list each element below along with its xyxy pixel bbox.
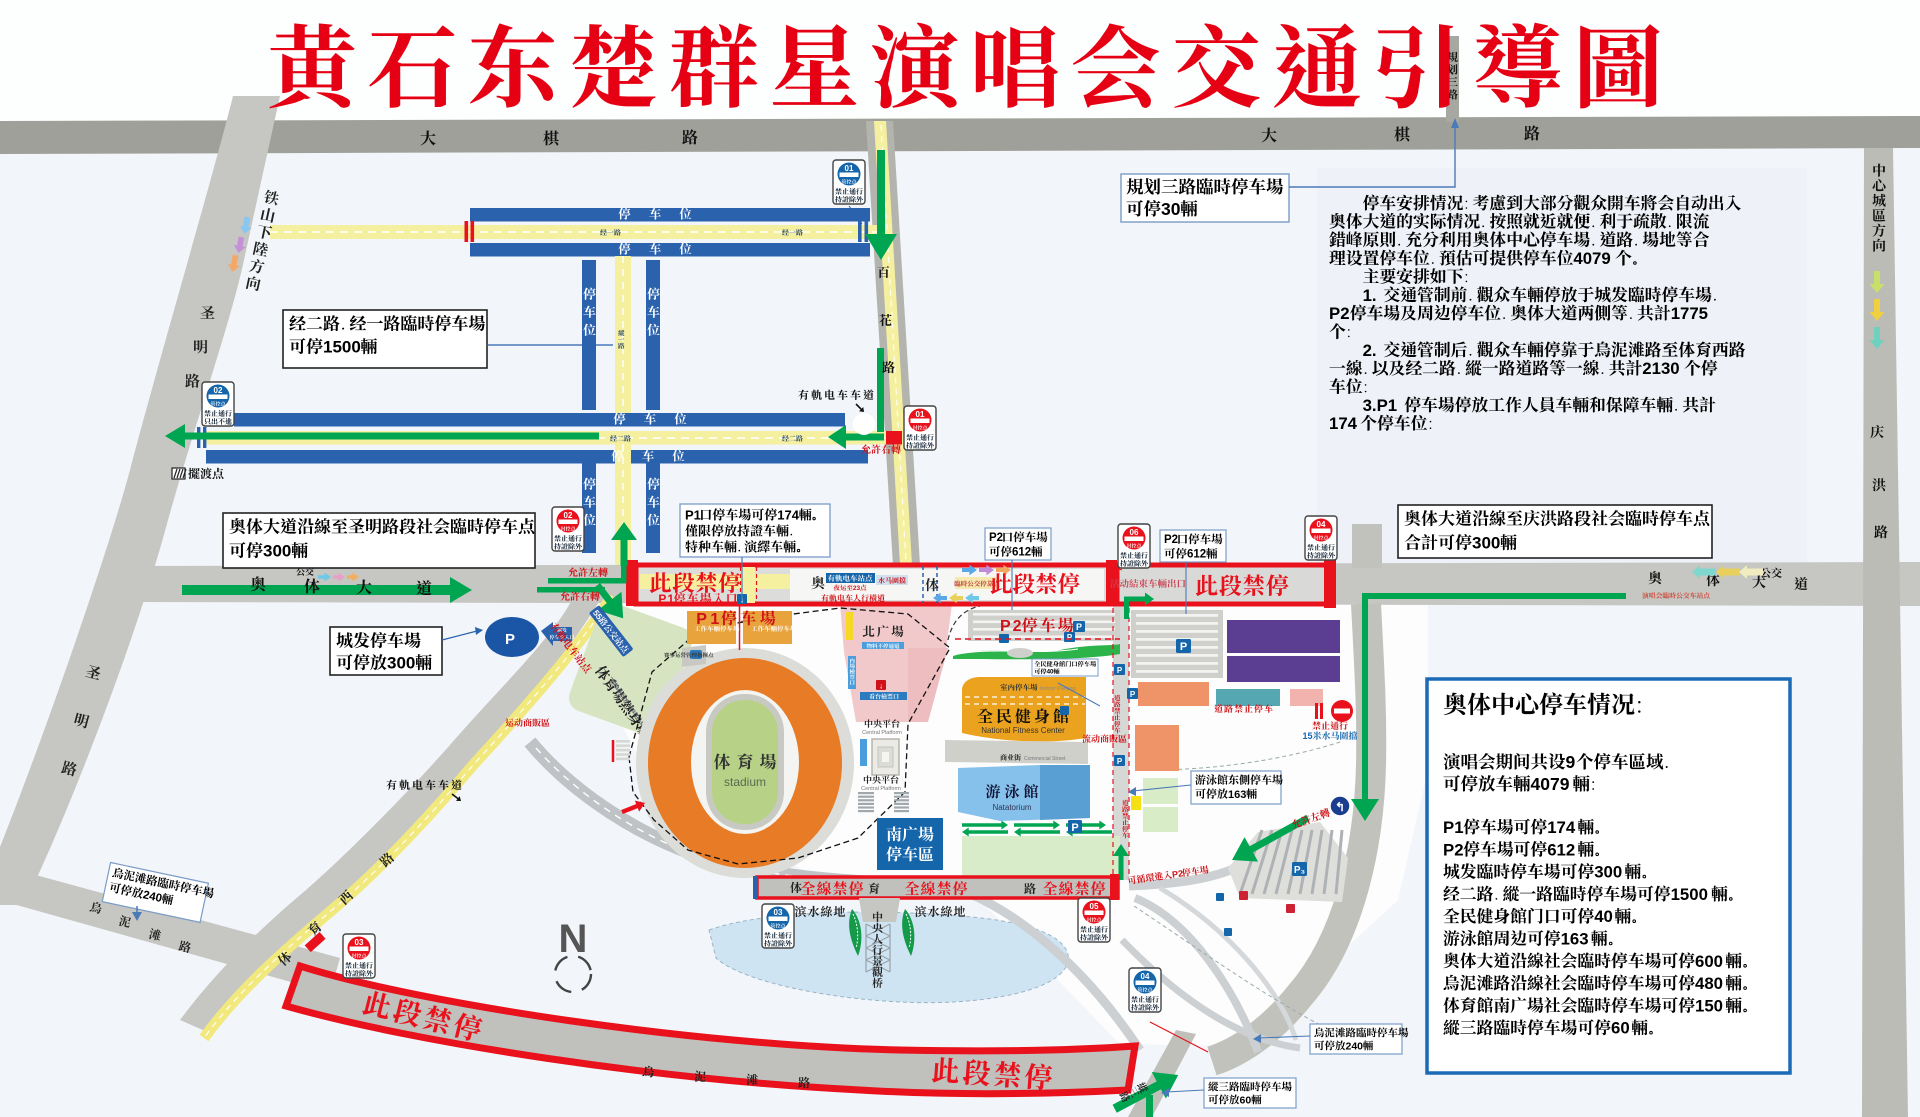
svg-text:P2: P2 — [1329, 304, 1350, 323]
svg-text:Central Platform: Central Platform — [862, 730, 902, 736]
svg-text:P2: P2 — [1000, 618, 1024, 635]
svg-text:4079: 4079 — [1573, 249, 1610, 268]
svg-text:P1: P1 — [685, 507, 701, 522]
svg-text:163: 163 — [1228, 789, 1246, 801]
svg-text:P2: P2 — [1164, 534, 1178, 546]
svg-text:P: P — [1117, 757, 1123, 766]
svg-text:600: 600 — [1695, 952, 1723, 971]
svg-text:Central Platform: Central Platform — [861, 786, 901, 792]
svg-text:P2: P2 — [1443, 840, 1464, 859]
svg-text:P: P — [1130, 690, 1136, 699]
svg-text:stadium: stadium — [724, 775, 766, 789]
svg-text:01: 01 — [845, 164, 854, 173]
svg-text:P: P — [1067, 633, 1073, 642]
svg-text:612: 612 — [1547, 840, 1575, 859]
svg-text:P1: P1 — [658, 592, 675, 606]
svg-text:240: 240 — [1346, 1040, 1364, 1052]
svg-text:1500: 1500 — [1671, 885, 1708, 904]
svg-text:04: 04 — [1317, 520, 1326, 529]
svg-text:480: 480 — [1695, 974, 1723, 993]
svg-text:P: P — [505, 631, 515, 648]
svg-text:174: 174 — [1329, 414, 1358, 433]
svg-text:05: 05 — [1090, 902, 1099, 911]
svg-text:23: 23 — [853, 585, 861, 592]
svg-text:300: 300 — [263, 542, 291, 561]
svg-text:174: 174 — [1547, 818, 1576, 837]
svg-text:174: 174 — [777, 507, 799, 522]
svg-text:National Fitness Center: National Fitness Center — [981, 726, 1065, 735]
svg-text:300: 300 — [387, 654, 415, 673]
svg-text:Indoor Parking: Indoor Parking — [1040, 686, 1076, 692]
svg-text:04: 04 — [1141, 972, 1150, 981]
svg-text:300: 300 — [1472, 534, 1500, 553]
svg-text:P: P — [1071, 822, 1078, 834]
svg-text:2.: 2. — [1363, 341, 1377, 360]
svg-text:612: 612 — [1012, 547, 1031, 559]
svg-text:30: 30 — [1161, 199, 1181, 219]
svg-text:1.: 1. — [1363, 286, 1377, 305]
svg-text:02: 02 — [214, 386, 223, 395]
svg-text:06: 06 — [1130, 528, 1139, 537]
svg-text:03: 03 — [774, 908, 783, 917]
svg-text:P: P — [1117, 666, 1123, 675]
svg-text:150: 150 — [1695, 996, 1723, 1015]
svg-text:40: 40 — [1594, 907, 1613, 926]
svg-text:Commercial Street: Commercial Street — [1024, 756, 1066, 762]
svg-text:↓: ↓ — [879, 682, 883, 691]
svg-text:2130: 2130 — [1642, 359, 1679, 378]
svg-text:↰: ↰ — [1335, 800, 1345, 814]
svg-text:1775: 1775 — [1671, 304, 1708, 323]
svg-text:9: 9 — [1566, 752, 1576, 772]
svg-text:163: 163 — [1561, 930, 1589, 949]
svg-text:P₃: P₃ — [1294, 865, 1306, 876]
svg-text:P1: P1 — [1443, 818, 1464, 837]
svg-text:612: 612 — [1187, 549, 1206, 561]
svg-text:03: 03 — [355, 938, 364, 947]
svg-text:40: 40 — [1047, 669, 1054, 676]
svg-text:N: N — [559, 917, 588, 961]
svg-text:4079: 4079 — [1531, 774, 1570, 794]
svg-text:60: 60 — [1240, 1094, 1252, 1106]
svg-text:15: 15 — [1303, 731, 1313, 741]
svg-text:300: 300 — [1594, 863, 1622, 882]
svg-text:Natatorium: Natatorium — [992, 803, 1031, 812]
svg-text:60: 60 — [1611, 1019, 1630, 1038]
svg-text:1500: 1500 — [323, 338, 361, 357]
svg-text:P: P — [1076, 622, 1082, 632]
svg-text:01: 01 — [916, 410, 925, 419]
svg-text:3.P1: 3.P1 — [1363, 396, 1398, 415]
svg-text:P2: P2 — [1171, 868, 1183, 879]
svg-text:P2: P2 — [989, 532, 1003, 544]
svg-text:P: P — [1180, 641, 1187, 653]
svg-text:02: 02 — [564, 511, 573, 520]
svg-text:P1: P1 — [696, 611, 723, 628]
